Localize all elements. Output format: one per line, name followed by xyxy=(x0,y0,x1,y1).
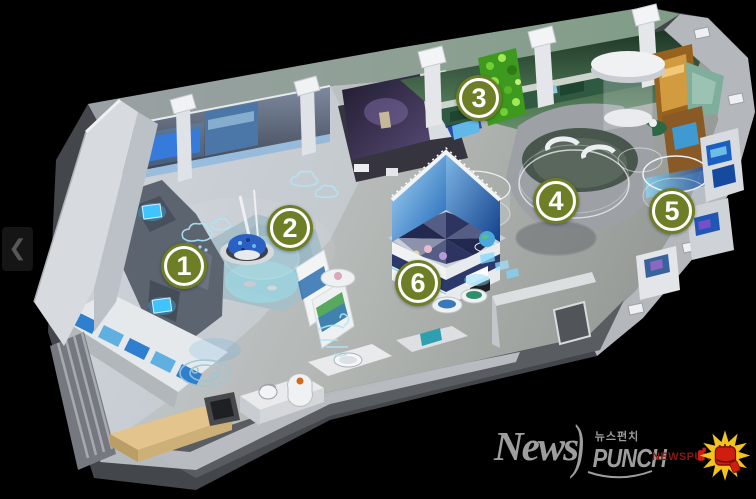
chevron-left-icon: ❮ xyxy=(8,238,26,260)
zone-badge-5: 5 xyxy=(649,188,695,234)
punch-fist-icon xyxy=(698,424,752,487)
zone-number: 1 xyxy=(176,251,191,282)
logo-swoosh-underline xyxy=(586,470,654,482)
zone-number: 3 xyxy=(471,83,486,114)
zone-badge-2: 2 xyxy=(267,205,313,251)
zone-number: 2 xyxy=(282,213,297,244)
carousel-prev-button[interactable]: ❮ xyxy=(2,227,33,271)
logo-punch-stack: 뉴스펀치 PUNCH xyxy=(588,428,646,471)
zone-number: 5 xyxy=(664,196,679,227)
news-article-image: 1 2 3 4 5 6 ❮ News ) 뉴스펀치 PUNCH NEWSPUNC… xyxy=(0,0,756,499)
logo-swoosh-icon: ) xyxy=(572,416,584,476)
zone-badge-1: 1 xyxy=(161,243,207,289)
zone-number: 4 xyxy=(548,186,563,217)
newspunch-logo: News ) 뉴스펀치 PUNCH NEWSPUNCH xyxy=(494,424,756,494)
logo-punch-text: PUNCH xyxy=(593,445,642,471)
logo-korean-text: 뉴스펀치 xyxy=(588,428,646,444)
logo-news-text: News xyxy=(494,426,577,467)
zone-number: 6 xyxy=(410,268,425,299)
zone-badge-3: 3 xyxy=(456,75,502,121)
zone-badge-6: 6 xyxy=(395,260,441,306)
zone-badge-4: 4 xyxy=(533,178,579,224)
